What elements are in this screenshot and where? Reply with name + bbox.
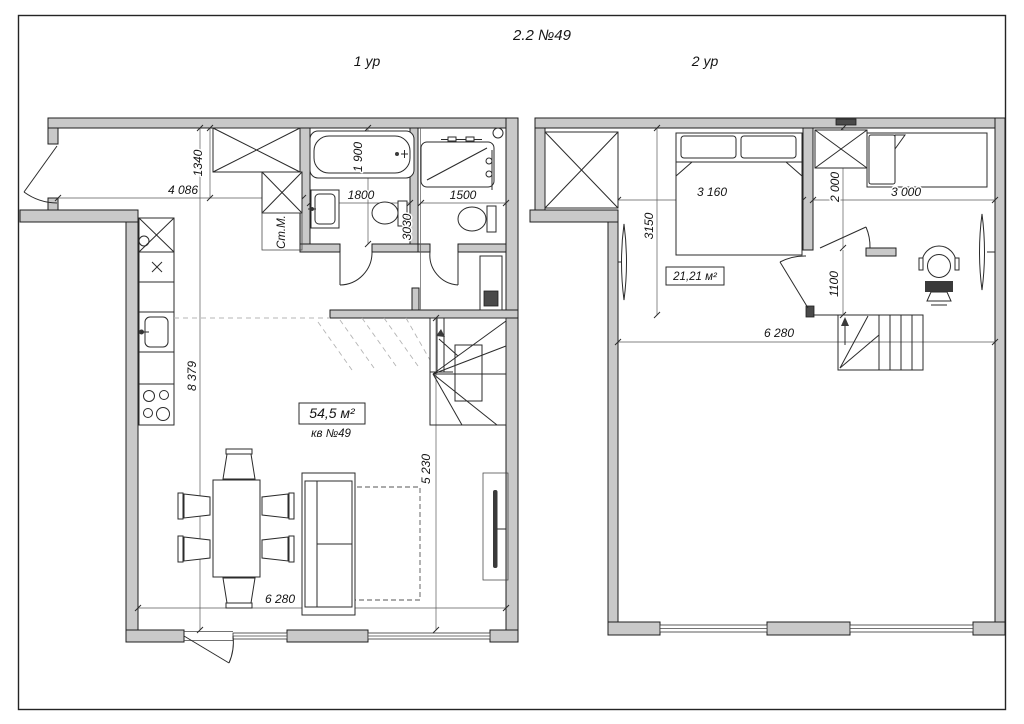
tv-bedroom-1 <box>618 224 627 300</box>
chair <box>178 493 210 519</box>
bathroom-1-door <box>340 252 372 285</box>
bathroom-sink <box>308 190 339 228</box>
chair <box>262 536 294 562</box>
level-2-label: 2 ур <box>691 53 719 69</box>
bathroom-2-door <box>430 252 458 285</box>
tv <box>483 473 508 580</box>
dim-entry-depth: 1340 <box>191 149 205 176</box>
bedroom-1-door <box>780 256 808 308</box>
dim-interior-depth: 8 379 <box>185 361 199 391</box>
dim-living-depth: 5 230 <box>419 454 433 484</box>
floor-plan-level-1: 54,5 м² кв №49 1340 4 086 1 900 1800 303… <box>20 118 518 663</box>
floor-plan-level-2: 21,21 м² <box>530 118 1005 635</box>
stove <box>139 384 174 425</box>
dim-bath1-depth: 1 900 <box>351 142 365 172</box>
floor-plan-sheet: 2.2 №49 1 ур 2 ур <box>0 0 1024 724</box>
wardrobe-bedroom-2 <box>815 130 867 168</box>
apartment-area: 54,5 м² <box>309 405 356 421</box>
floor-plan-drawing: 2.2 №49 1 ур 2 ур <box>0 0 1024 724</box>
area-label-level-2: 21,21 м² <box>666 267 724 285</box>
entrance-door <box>24 146 57 203</box>
chair <box>223 449 255 479</box>
sheet-title: 2.2 №49 <box>512 27 572 44</box>
wardrobe-entry <box>213 128 302 213</box>
bedroom-area: 21,21 м² <box>672 271 718 283</box>
level-1-label: 1 ур <box>354 53 381 69</box>
washing-machine-label: Ст.М. <box>276 215 288 249</box>
dim-bath2-depth: 3030 <box>400 213 414 240</box>
bed-single <box>867 133 987 187</box>
kitchen-sink <box>139 312 174 352</box>
toilet-2 <box>458 206 496 232</box>
bedroom-2-door <box>820 227 870 248</box>
stair-direction-arrow <box>841 317 849 326</box>
bathroom-2 <box>421 128 503 310</box>
dim-bath1-width: 1800 <box>348 188 375 202</box>
stairs-level-2 <box>813 315 923 370</box>
dim-wardrobe-depth: 2 000 <box>828 172 842 203</box>
dim-bedroom2-width: 3 000 <box>891 185 921 199</box>
shower-tray <box>421 137 494 190</box>
kitchen-counter <box>139 218 174 425</box>
bedroom-2 <box>815 130 995 305</box>
tv-bedroom-2 <box>980 214 996 290</box>
dim-bedroom1-depth: 3150 <box>642 212 656 239</box>
dim-interior-width: 6 280 <box>265 592 295 606</box>
dim-landing-depth: 1100 <box>827 271 841 297</box>
desk-chair <box>919 246 959 305</box>
bed-double <box>676 133 802 255</box>
chair <box>262 493 294 519</box>
dim-interior-width-2: 6 280 <box>764 326 794 340</box>
terrace-door <box>184 636 233 663</box>
sofa-bed <box>302 473 420 615</box>
desk <box>925 281 953 292</box>
dim-hall-width: 4 086 <box>168 183 198 197</box>
chair <box>178 536 210 562</box>
water-heater-cabinet <box>480 256 502 310</box>
wardrobe-bedroom-1 <box>545 132 618 208</box>
apartment-number: кв №49 <box>311 428 351 440</box>
area-label-level-1: 54,5 м² кв №49 <box>299 403 365 440</box>
dining-table <box>178 449 294 608</box>
chair <box>223 578 255 608</box>
dim-bath2-width: 1500 <box>450 188 477 202</box>
dim-bedroom1-width: 3 160 <box>697 185 727 199</box>
